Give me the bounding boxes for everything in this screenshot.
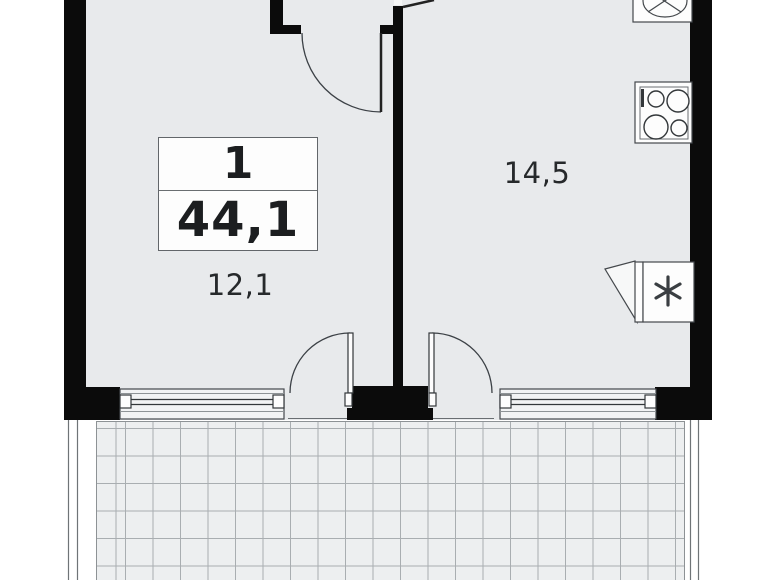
floor-plan: 1 44,1 12,1 14,5 (0, 0, 780, 580)
outer-wall-right (690, 0, 712, 420)
window-left (120, 389, 284, 419)
stove-icon (635, 82, 692, 143)
sink-icon (633, 0, 692, 22)
living-room-area-label: 12,1 (185, 268, 295, 302)
plan-drawing (0, 0, 780, 580)
window-end-cap (645, 395, 656, 408)
door-leaf (348, 333, 353, 393)
fridge-hinge-panel (635, 262, 643, 322)
rooms-count: 1 (159, 138, 317, 191)
interior-wall (393, 6, 403, 387)
bottom-wall-left-block (64, 387, 120, 420)
top-wall-l-horizontal (270, 25, 301, 34)
sink-counter (633, 0, 692, 22)
burner-small (671, 120, 687, 136)
burner-small (648, 91, 664, 107)
entry-door-jamb-stub (380, 25, 394, 34)
balcony-railing-right (691, 420, 699, 580)
door-jamb (345, 393, 352, 406)
total-area: 44,1 (159, 191, 317, 251)
kitchen-area-label: 14,5 (482, 156, 592, 190)
burner-large (644, 115, 668, 139)
interior-wall-top-notch (394, 0, 402, 5)
door-leaf (429, 333, 434, 393)
window-end-cap (273, 395, 284, 408)
top-wall-l-vertical (270, 0, 283, 26)
window-end-cap (500, 395, 511, 408)
unit-info-box: 1 44,1 (158, 137, 318, 251)
burner-large (667, 90, 689, 112)
bottom-wall-center-pier-base (347, 408, 433, 420)
stove-knob (641, 89, 644, 107)
bottom-wall-center-pier (352, 386, 428, 410)
outer-wall-left (64, 0, 86, 420)
bottom-wall-right-block (655, 387, 712, 420)
window-right (500, 389, 656, 419)
window-end-cap (120, 395, 131, 408)
door-jamb (429, 393, 436, 406)
balcony-railing-left (69, 420, 78, 580)
